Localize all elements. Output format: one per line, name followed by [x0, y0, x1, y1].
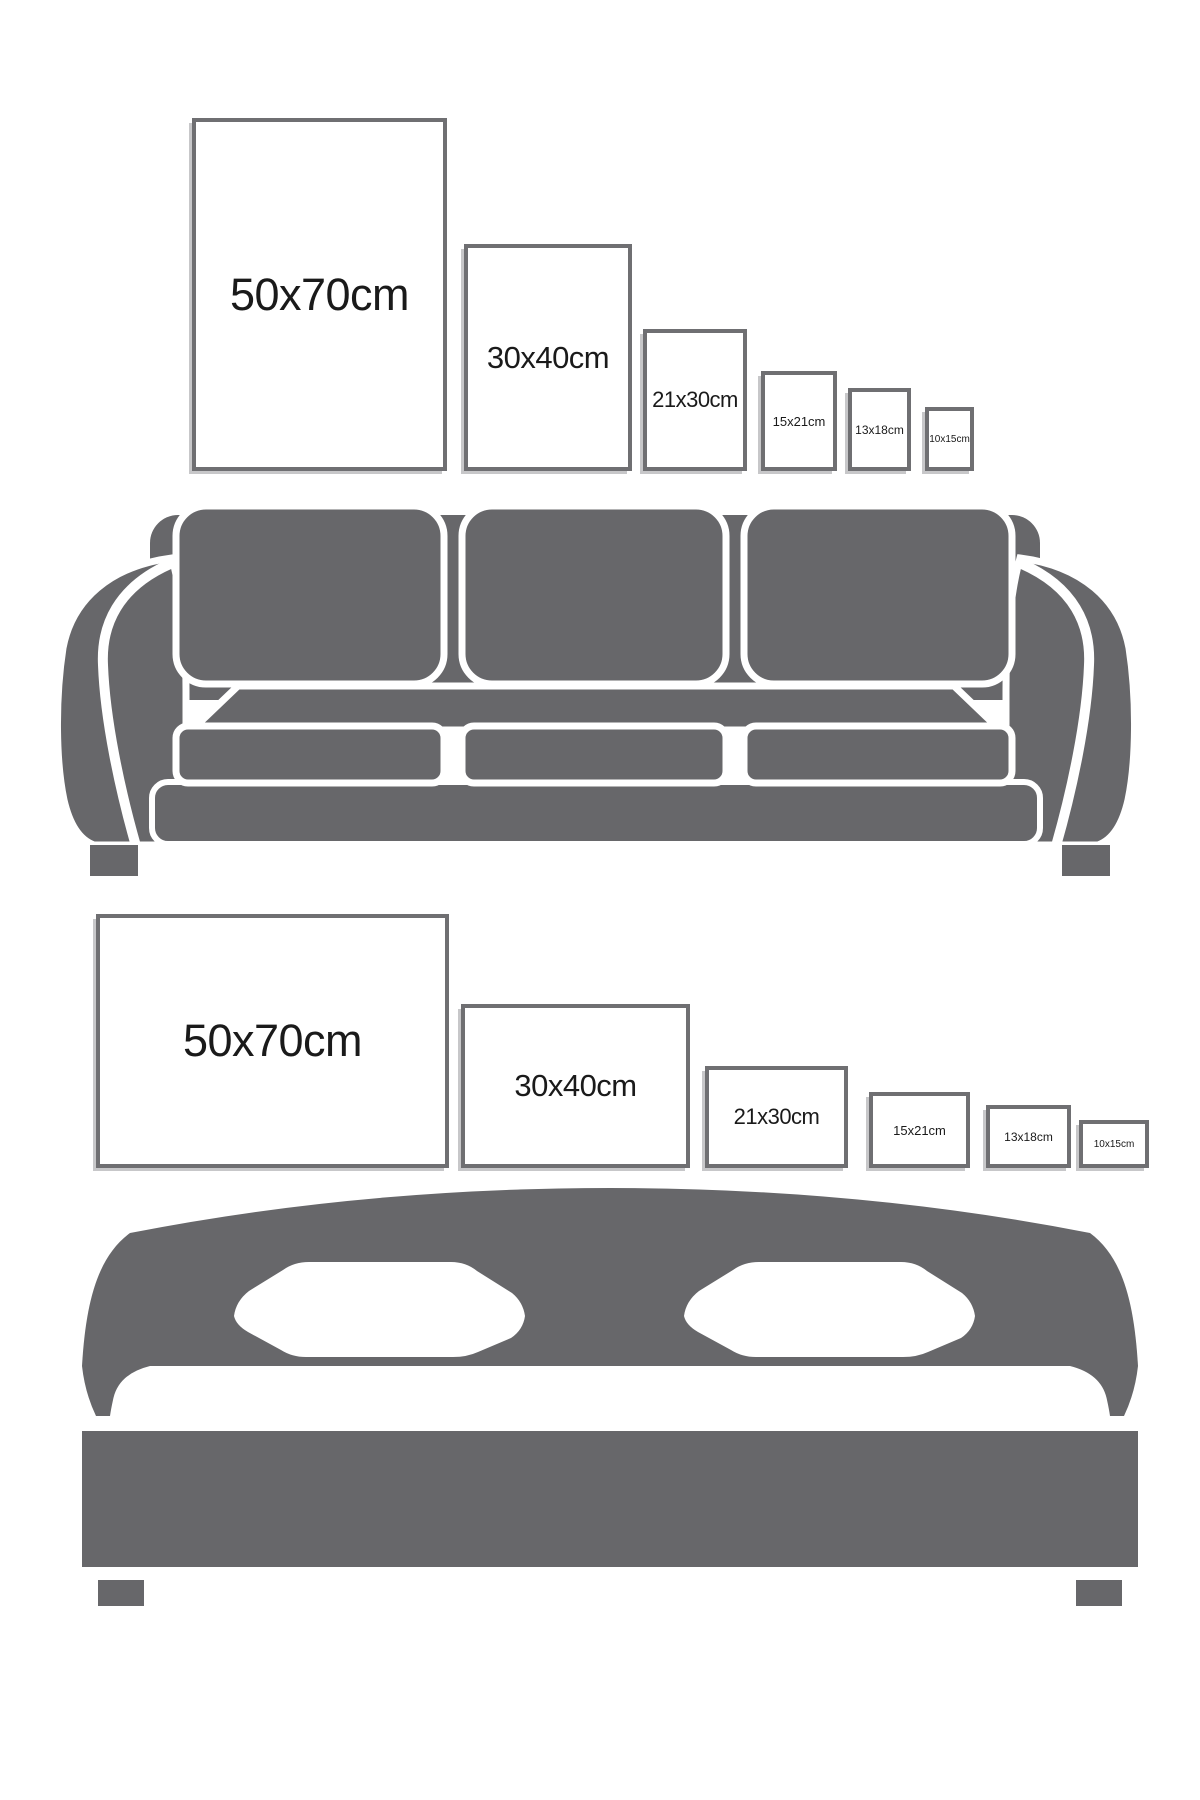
frame-landscape-30x40: 30x40cm [461, 1004, 690, 1168]
frame-portrait-50x70: 50x70cm [192, 118, 447, 471]
frame-landscape-13x18: 13x18cm [986, 1105, 1071, 1168]
bed-left-pillow [234, 1262, 525, 1357]
bed-right-foot [1076, 1580, 1122, 1606]
frame-portrait-30x40: 30x40cm [464, 244, 632, 471]
sofa-illustration [40, 498, 1140, 880]
bed-right-pillow [684, 1262, 975, 1357]
frame-landscape-15x21: 15x21cm [869, 1092, 970, 1168]
bed-headboard [82, 1188, 1138, 1366]
size-comparison-diagram: 50x70cm 30x40cm 21x30cm 15x21cm 13x18cm … [0, 0, 1200, 1800]
bed-left-post [82, 1366, 150, 1416]
sofa-back-cushion-middle [462, 506, 726, 684]
sofa-right-foot [1062, 845, 1110, 876]
sofa-seat-cushion-right [744, 726, 1012, 783]
bed-base [82, 1431, 1138, 1567]
frame-portrait-13x18: 13x18cm [848, 388, 911, 471]
sofa-seat-cushion-middle [462, 726, 726, 783]
frame-portrait-15x21: 15x21cm [761, 371, 837, 471]
sofa-seat-cushion-left [176, 726, 444, 783]
frame-portrait-10x15: 10x15cm [925, 407, 974, 471]
frame-portrait-21x30: 21x30cm [643, 329, 747, 471]
sofa-base [152, 782, 1040, 844]
sofa-back-cushion-right [744, 506, 1012, 684]
bed-right-post [1070, 1366, 1138, 1416]
frame-landscape-21x30: 21x30cm [705, 1066, 848, 1168]
sofa-left-foot [90, 845, 138, 876]
frame-landscape-50x70: 50x70cm [96, 914, 449, 1168]
bed-left-foot [98, 1580, 144, 1606]
frame-landscape-10x15: 10x15cm [1079, 1120, 1149, 1168]
sofa-back-cushion-left [176, 506, 444, 684]
bed-illustration [60, 1180, 1160, 1612]
